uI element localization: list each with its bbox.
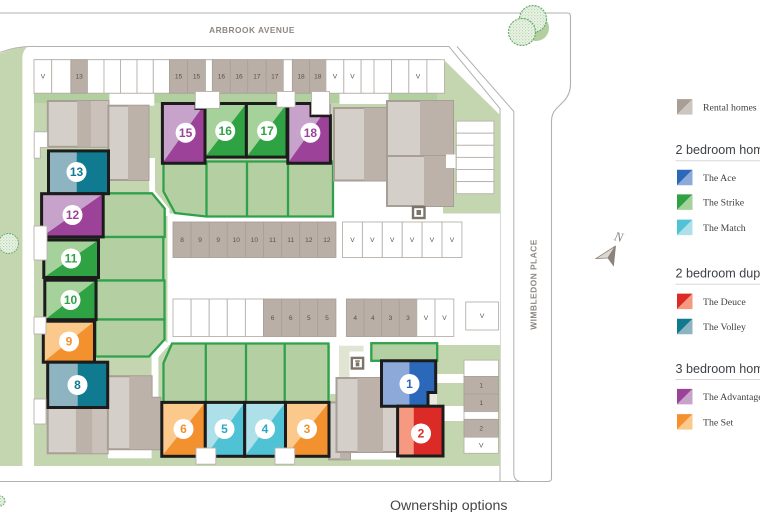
svg-text:V: V: [424, 315, 429, 322]
svg-text:9: 9: [66, 335, 73, 349]
svg-text:4: 4: [353, 315, 357, 322]
svg-text:V: V: [442, 315, 447, 322]
svg-text:8: 8: [74, 378, 81, 392]
svg-text:12: 12: [66, 208, 80, 222]
svg-text:V: V: [416, 74, 421, 81]
svg-text:3: 3: [304, 422, 311, 436]
svg-text:1: 1: [406, 377, 413, 391]
svg-text:Rental homes: Rental homes: [703, 103, 757, 114]
svg-text:10: 10: [233, 237, 241, 244]
svg-text:The Set: The Set: [703, 417, 733, 428]
svg-text:6: 6: [271, 315, 275, 322]
svg-text:V: V: [333, 74, 338, 81]
svg-text:3 bedroom homes: 3 bedroom homes: [676, 362, 760, 376]
svg-text:V: V: [390, 237, 395, 244]
svg-text:V: V: [370, 237, 375, 244]
svg-text:16: 16: [218, 74, 226, 81]
svg-text:18: 18: [314, 74, 322, 81]
svg-text:5: 5: [325, 315, 329, 322]
svg-text:11: 11: [65, 252, 78, 266]
svg-text:V: V: [450, 237, 455, 244]
svg-text:5: 5: [221, 422, 228, 436]
svg-text:9: 9: [198, 237, 202, 244]
svg-text:18: 18: [297, 74, 305, 81]
svg-text:The Match: The Match: [703, 223, 746, 234]
svg-text:3: 3: [389, 315, 393, 322]
svg-text:V: V: [41, 74, 46, 81]
svg-text:18: 18: [304, 126, 318, 140]
svg-text:4: 4: [371, 315, 375, 322]
svg-text:V: V: [430, 237, 435, 244]
svg-text:15: 15: [193, 74, 201, 81]
svg-text:V: V: [350, 237, 355, 244]
svg-text:5: 5: [307, 315, 311, 322]
svg-text:17: 17: [271, 74, 279, 81]
svg-text:8: 8: [180, 237, 184, 244]
svg-text:WIMBLEDON PLACE: WIMBLEDON PLACE: [529, 239, 539, 330]
svg-text:9: 9: [216, 237, 220, 244]
svg-text:The Volley: The Volley: [703, 322, 746, 333]
svg-text:11: 11: [269, 237, 276, 244]
svg-text:15: 15: [179, 126, 193, 140]
svg-text:12: 12: [323, 237, 331, 244]
svg-text:17: 17: [260, 124, 274, 138]
svg-text:2 bedroom homes: 2 bedroom homes: [676, 143, 760, 157]
svg-text:11: 11: [287, 237, 294, 244]
svg-text:N: N: [612, 228, 626, 245]
svg-text:2 bedroom duplex apartments: 2 bedroom duplex apartments: [676, 267, 760, 281]
svg-text:The Advantage: The Advantage: [703, 392, 760, 403]
svg-text:17: 17: [253, 74, 261, 81]
svg-text:10: 10: [64, 293, 78, 307]
svg-text:2: 2: [418, 427, 425, 441]
svg-text:The Deuce: The Deuce: [703, 297, 746, 308]
svg-text:4: 4: [262, 422, 269, 436]
svg-text:6: 6: [180, 422, 187, 436]
svg-text:V: V: [350, 74, 355, 81]
svg-text:Ownership options: Ownership options: [390, 498, 508, 512]
svg-text:12: 12: [305, 237, 313, 244]
svg-text:16: 16: [219, 124, 233, 138]
svg-text:The Ace: The Ace: [703, 173, 737, 184]
svg-text:ARBROOK AVENUE: ARBROOK AVENUE: [209, 25, 295, 35]
svg-text:10: 10: [251, 237, 259, 244]
svg-text:13: 13: [76, 74, 84, 81]
svg-text:V: V: [410, 237, 415, 244]
svg-text:V: V: [480, 313, 485, 320]
svg-text:1: 1: [479, 382, 483, 389]
svg-text:1: 1: [479, 400, 483, 407]
svg-text:2: 2: [479, 426, 483, 433]
svg-text:V: V: [479, 442, 484, 449]
svg-text:13: 13: [70, 165, 84, 179]
svg-text:15: 15: [175, 74, 183, 81]
svg-text:16: 16: [235, 74, 243, 81]
svg-text:3: 3: [406, 315, 410, 322]
svg-text:6: 6: [289, 315, 293, 322]
svg-text:The Strike: The Strike: [703, 198, 745, 209]
